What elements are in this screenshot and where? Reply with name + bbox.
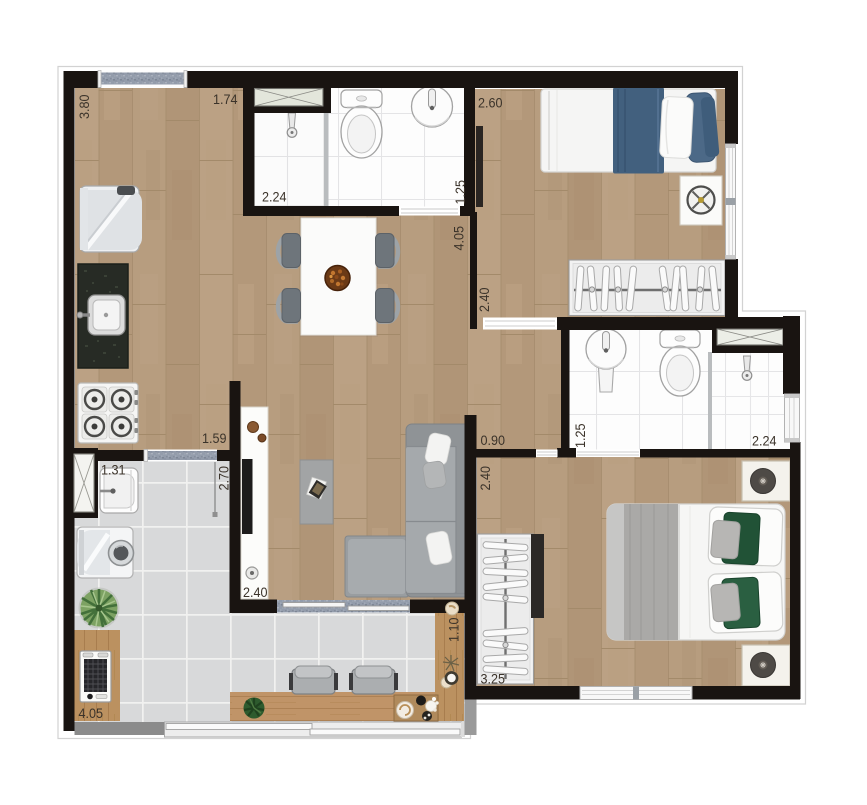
svg-text:0.90: 0.90: [481, 432, 506, 448]
svg-text:2.24: 2.24: [752, 433, 777, 449]
svg-text:4.05: 4.05: [451, 226, 467, 251]
svg-text:2.70: 2.70: [216, 466, 232, 491]
svg-text:1.31: 1.31: [101, 462, 126, 478]
svg-text:1.25: 1.25: [572, 423, 588, 448]
svg-text:2.40: 2.40: [476, 287, 492, 312]
svg-text:1.59: 1.59: [202, 430, 227, 446]
svg-text:4.05: 4.05: [79, 705, 104, 721]
svg-text:1.74: 1.74: [213, 91, 238, 107]
svg-text:1.10: 1.10: [446, 617, 462, 642]
svg-text:2.40: 2.40: [243, 584, 268, 600]
svg-text:3.25: 3.25: [481, 671, 506, 687]
svg-text:2.60: 2.60: [478, 95, 503, 111]
svg-text:2.40: 2.40: [477, 466, 493, 491]
svg-text:2.24: 2.24: [262, 189, 287, 205]
svg-text:1.25: 1.25: [452, 180, 468, 205]
svg-text:3.80: 3.80: [76, 94, 92, 119]
